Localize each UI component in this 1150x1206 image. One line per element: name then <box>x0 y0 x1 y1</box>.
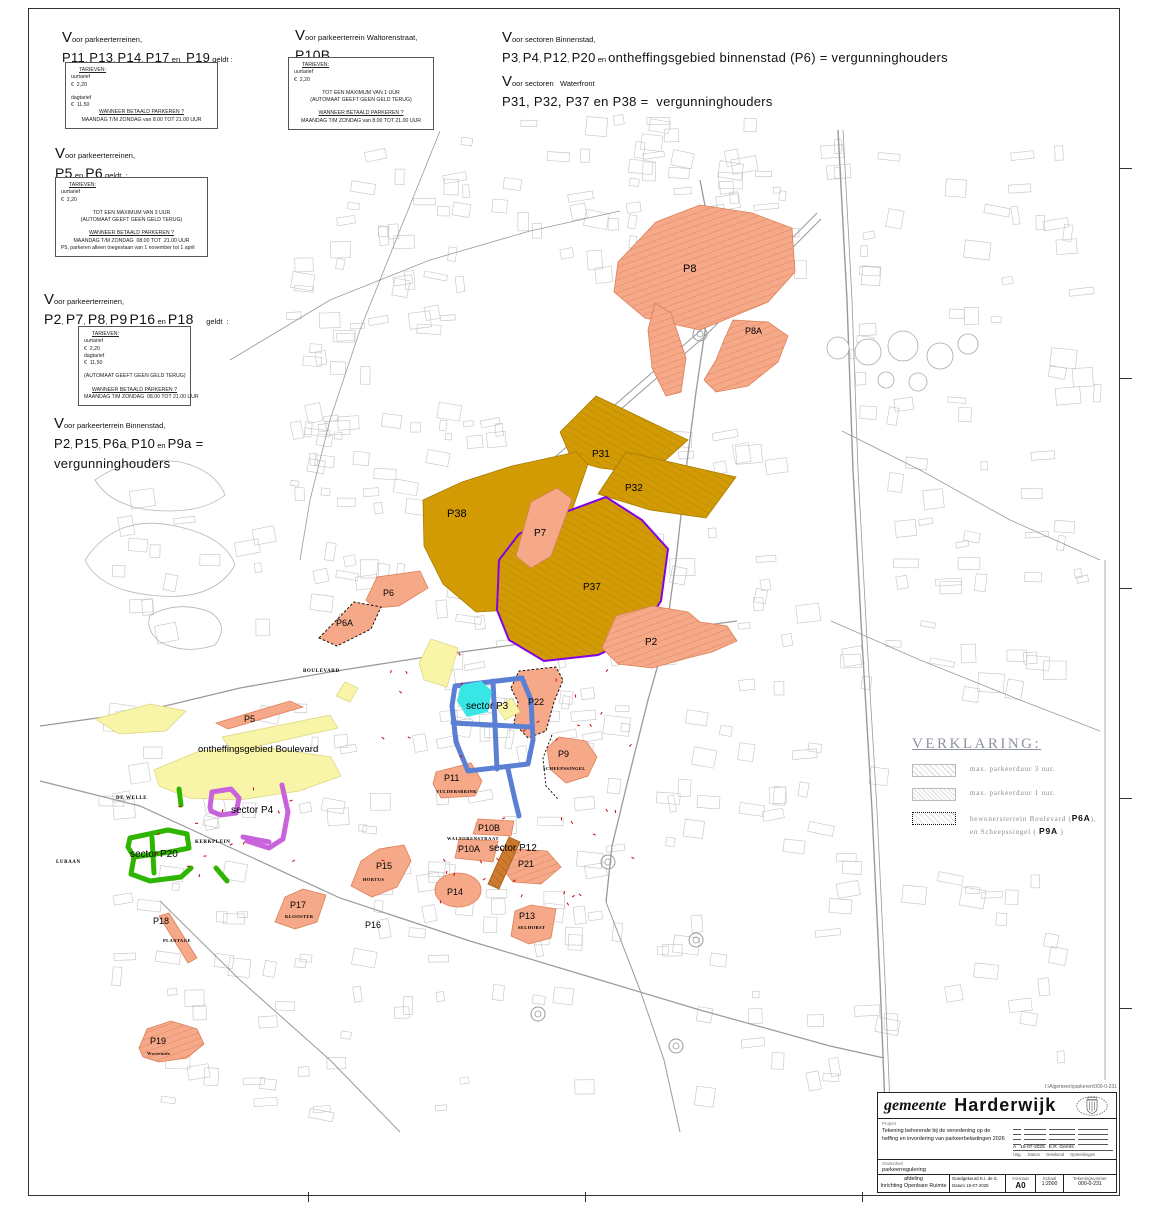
afdeling-value: Inrichting Openbare Ruimte <box>881 1183 947 1189</box>
sublabel-P18: PLANTAGE <box>163 938 191 943</box>
gemeente-label: gemeente <box>884 1097 946 1115</box>
map-label: P16 <box>365 920 381 930</box>
area-boulevard-y1 <box>95 704 186 734</box>
title-block-bottom-row: afdeling Inrichting Openbare Ruimte Goed… <box>878 1175 1116 1192</box>
storage-tank-outline <box>888 331 918 361</box>
approved-date: Datum 15-07-2025 <box>952 1183 989 1188</box>
sublabel-P13: SELHORST <box>518 925 545 930</box>
note-binnenstad-verg-line2: vergunninghouders <box>54 456 294 473</box>
map-label: sector P20 <box>130 849 178 860</box>
note-sector-waterfront-line: P31, P32, P37 en P38 = vergunninghouders <box>502 94 922 111</box>
label-P6A: P6A <box>336 618 353 628</box>
note-p5p6-intro: Voor parkeerterreinen, <box>55 146 275 163</box>
legend-title: VERKLARING: <box>912 736 1127 753</box>
label-P10A: P10A <box>458 844 480 854</box>
map-label: DE WELLE <box>116 796 147 801</box>
legend-bewoners-line1: bewonersterrein Boulevard (P6A), <box>970 812 1096 825</box>
note-p10b-intro: Voor parkeerterrein Waltorenstraat, <box>295 28 475 45</box>
storage-tank-outline <box>878 372 894 388</box>
note-binnenstad-vergunning: Voor parkeerterrein Binnenstad, P2, P15,… <box>54 416 294 472</box>
title-block: gemeente Harderwijk Project Tekening beh… <box>877 1092 1117 1193</box>
map-label: ontheffingsgebied Boulevard <box>198 744 318 755</box>
revision-headers: Uitg. Datum Getekend Opmerkingen <box>1013 1152 1113 1157</box>
roundabout <box>669 1039 683 1053</box>
map-label: WALTORENSTRAAT <box>447 836 499 841</box>
tariff-box-p10b: TARIEVEN:uurtarief€ 2,20TOT EEN MAXIMUM … <box>288 57 434 130</box>
label-P10B: P10B <box>478 823 500 833</box>
fold-mark <box>1119 1008 1132 1009</box>
onderdeel-value: parkeerregulering <box>882 1167 1112 1173</box>
roundabout <box>531 1007 545 1021</box>
formaat-cell: Formaat A0 <box>1006 1175 1036 1192</box>
fold-mark <box>308 1192 309 1202</box>
storage-tank-outline <box>827 337 849 359</box>
head-uitg: Uitg. <box>1013 1152 1022 1157</box>
legend-item-bewoners-label: bewonersterrein Boulevard (P6A), en Sche… <box>970 812 1096 838</box>
schaal-value: 1:2000 <box>1038 1181 1061 1187</box>
revision-datum: 15-07-2025 <box>1020 1145 1045 1150</box>
title-block-header: gemeente Harderwijk <box>878 1093 1116 1119</box>
area-P15 <box>351 845 411 897</box>
head-getekend: Getekend <box>1046 1152 1064 1157</box>
label-P8: P8 <box>683 263 696 275</box>
project-label: Project <box>882 1121 1006 1126</box>
label-P17: P17 <box>290 900 306 910</box>
file-reference: t:\Algemeen\parkeren\000-0-231 <box>877 1084 1117 1090</box>
tekeningnummer-value: 000-0-231 <box>1066 1181 1114 1187</box>
label-P19: P19 <box>150 1036 166 1046</box>
drawing-sheet: P8P8AP31P32P38P37P7P2P6P6AP5P22P9SCHEEPS… <box>0 0 1150 1206</box>
title-block-project-row: Project Tekening behorende bij de verord… <box>878 1119 1116 1160</box>
label-P8A: P8A <box>745 326 762 336</box>
harderwijk-crest-icon <box>1074 1095 1110 1117</box>
revision-table: A 15-07-2025 E.R. Gerrits Uitg. Datum Ge… <box>1010 1119 1116 1159</box>
project-line1: Tekening behorende bij de verordening op… <box>882 1128 1006 1134</box>
revision-uitg: A <box>1013 1145 1016 1150</box>
hatch-diagonal-swatch <box>912 764 956 777</box>
approved-by: Goedgekeurd K.I. de S. <box>952 1176 998 1181</box>
tariff-box-p2p7: TARIEVEN:uurtarief€ 2,20dagtarief€ 11,50… <box>78 326 191 406</box>
area-P8 <box>614 205 795 330</box>
label-P38: P38 <box>447 508 467 520</box>
map-label: LUBAAN <box>56 860 81 865</box>
tekeningnummer-cell: Tekeningnummer 000-0-231 <box>1064 1175 1116 1192</box>
onderdeel-label: Onderdeel <box>882 1161 1112 1166</box>
area-boulevard-y5 <box>336 682 358 702</box>
sublabel-P11: VULDERSBRINK <box>436 789 477 794</box>
legend-item-3uur-label: max. parkeerduur 3 uur. <box>970 764 1055 775</box>
legend-item-bewoners: bewonersterrein Boulevard (P6A), en Sche… <box>912 812 1127 838</box>
roundabout <box>689 933 703 947</box>
legend-item-3uur: max. parkeerduur 3 uur. <box>912 764 1127 777</box>
afdeling-label: afdeling <box>904 1176 923 1182</box>
fold-mark <box>1119 378 1132 379</box>
head-datum: Datum <box>1028 1152 1040 1157</box>
label-P7: P7 <box>534 528 547 539</box>
label-P6: P6 <box>383 588 394 598</box>
label-P2: P2 <box>645 637 658 648</box>
sublabel-P19: Westeinde <box>147 1051 170 1056</box>
note-sector-waterfront: Voor sectoren Waterfront P31, P32, P37 e… <box>502 74 922 111</box>
label-P22: P22 <box>528 697 544 707</box>
label-P37: P37 <box>583 582 601 593</box>
roundabout <box>601 855 615 869</box>
revision-getekend: E.R. Gerrits <box>1049 1145 1074 1150</box>
project-cell: Project Tekening behorende bij de verord… <box>878 1119 1010 1159</box>
fold-mark <box>862 1192 863 1202</box>
afdeling-cell: afdeling Inrichting Openbare Ruimte <box>878 1175 950 1192</box>
tariff-box-p11: TARIEVEN:uurtarief€ 2,20dagtarief€ 11,50… <box>65 62 218 129</box>
label-P15: P15 <box>376 861 392 871</box>
legend-bewoners-line2: en Scheepssingel ( P9A ) <box>970 825 1096 838</box>
label-P14: P14 <box>447 887 463 897</box>
map-label: sector P4 <box>231 805 274 816</box>
note-binnenstad-verg-intro: Voor parkeerterrein Binnenstad, <box>54 416 294 433</box>
storage-tank-outline <box>855 339 881 365</box>
legend-item-1uur: max. parkeerduur 1 uur. <box>912 788 1127 801</box>
fold-mark <box>1119 588 1132 589</box>
map-label: KERKPLEIN <box>195 840 230 845</box>
label-P32: P32 <box>625 483 643 494</box>
area-P2 <box>602 606 737 668</box>
project-line2: heffing en invordering van parkeerbelast… <box>882 1136 1006 1142</box>
map-label: sector P12 <box>489 843 537 854</box>
note-binnenstad-verg-line: P2, P15, P6a, P10 en P9a = <box>54 436 294 453</box>
label-P11: P11 <box>444 773 459 783</box>
label-P9: P9 <box>558 749 569 759</box>
sublabel-P9: SCHEEPSSINGEL <box>543 766 586 771</box>
label-P31: P31 <box>592 449 610 460</box>
title-block-onderdeel-row: Onderdeel parkeerregulering <box>878 1160 1116 1175</box>
formaat-value: A0 <box>1008 1181 1033 1190</box>
sublabel-P17: KLOOSTER <box>285 914 314 919</box>
sublabel-P15: HORTUS <box>363 877 384 882</box>
tariff-box-p5p6: TARIEVEN:uurtarief€ 2,20TOT EEN MAXIMUM … <box>55 177 208 257</box>
parking-areas <box>95 205 795 1062</box>
note-sector-binnenstad-intro: Voor sectoren Binnenstad, <box>502 30 1062 47</box>
schaal-cell: Schaal 1:2000 <box>1036 1175 1064 1192</box>
note-sector-binnenstad-line: P3, P4, P12, P20 en ontheffingsgebied bi… <box>502 50 1062 67</box>
note-sector-binnenstad: Voor sectoren Binnenstad, P3, P4, P12, P… <box>502 30 1062 67</box>
city-name: Harderwijk <box>954 1095 1074 1116</box>
area-boulevard-y4 <box>419 639 458 687</box>
label-P18: P18 <box>153 916 169 926</box>
label-P13: P13 <box>519 911 535 921</box>
note-p11-intro: Voor parkeerterreinen, <box>62 30 302 47</box>
map-label: BOULEVARD <box>303 669 340 674</box>
area-P6 <box>366 571 428 608</box>
note-sector-waterfront-intro: Voor sectoren Waterfront <box>502 74 922 91</box>
head-opmerkingen: Opmerkingen <box>1070 1152 1095 1157</box>
legend: VERKLARING: max. parkeerduur 3 uur. max.… <box>912 736 1127 838</box>
note-p2p7-intro: Voor parkeerterreinen, <box>44 292 284 309</box>
storage-tank-outline <box>909 373 927 391</box>
legend-item-1uur-label: max. parkeerduur 1 uur. <box>970 788 1055 799</box>
label-P21: P21 <box>518 859 534 869</box>
revision-row: A 15-07-2025 E.R. Gerrits <box>1013 1145 1113 1151</box>
note-p2p7-group: Voor parkeerterreinen, P2, P7, P8, P9 P1… <box>44 292 284 329</box>
storage-tank-outline <box>927 343 953 369</box>
fold-mark <box>585 1192 586 1202</box>
label-P5: P5 <box>244 714 255 724</box>
approved-cell: Goedgekeurd K.I. de S. Datum 15-07-2025 <box>950 1175 1006 1192</box>
fold-mark <box>1119 168 1132 169</box>
area-P9 <box>547 737 597 783</box>
hatch-cross-swatch <box>912 788 956 801</box>
storage-tank-outline <box>958 334 978 354</box>
map-label: sector P3 <box>466 701 509 712</box>
dotted-border-swatch <box>912 812 956 825</box>
